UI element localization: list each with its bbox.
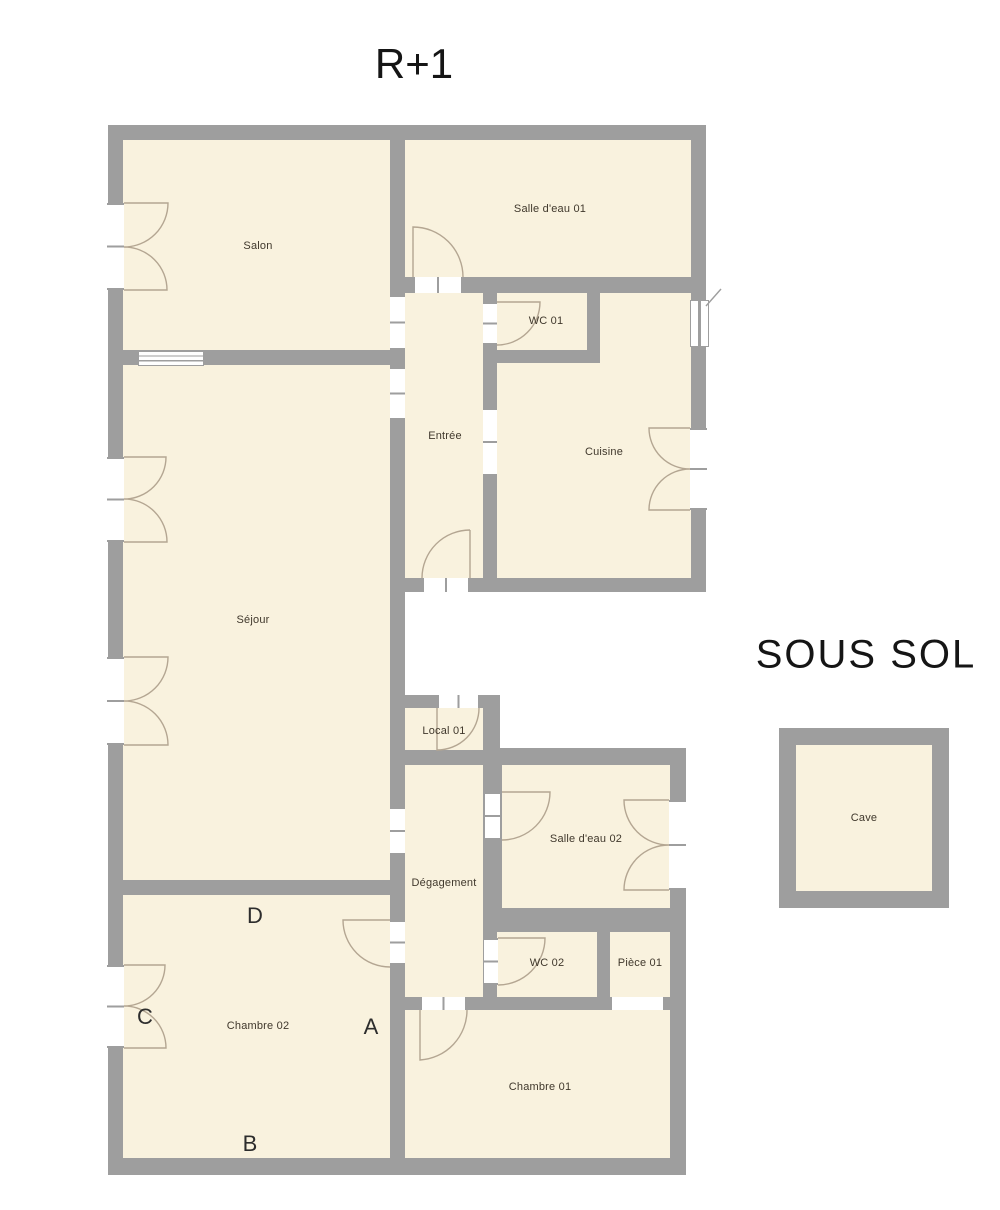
label-salon: Salon — [243, 240, 272, 252]
opening-piece-01-chambre-01 — [612, 997, 663, 1010]
door-opening-entree-cuisine — [483, 408, 497, 476]
french-door-frame-chambre-02 — [107, 965, 124, 1048]
door-opening-entree-exterior — [422, 578, 470, 592]
label-salle-deau-01: Salle d'eau 01 — [514, 203, 586, 215]
label-local-01: Local 01 — [422, 725, 465, 737]
door-opening-salle-deau-02 — [485, 792, 500, 840]
label-wc-01: WC 01 — [529, 315, 564, 327]
marker-d: D — [247, 903, 263, 929]
marker-b: B — [243, 1131, 258, 1157]
door-opening-salle-deau-01 — [413, 277, 463, 293]
label-chambre-02: Chambre 02 — [227, 1020, 290, 1032]
door-opening-sejour-degagement — [390, 807, 405, 855]
french-door-frame-sejour-1 — [107, 457, 124, 542]
label-salle-deau-02: Salle d'eau 02 — [550, 833, 622, 845]
label-sejour: Séjour — [237, 614, 270, 626]
door-opening-salon-entree — [390, 295, 405, 350]
label-piece-01: Pièce 01 — [618, 957, 662, 969]
window-cuisine — [690, 300, 709, 347]
french-door-frame-salon — [107, 203, 124, 290]
title-basement: SOUS SOL — [756, 633, 977, 678]
french-door-frame-sejour-2 — [107, 657, 124, 745]
floor-plan-page: R+1 SOUS SOL — [0, 0, 1000, 1210]
door-opening-chambre-02 — [390, 920, 405, 965]
french-door-frame-cuisine — [690, 428, 707, 510]
marker-c: C — [137, 1004, 153, 1030]
marker-a: A — [364, 1014, 379, 1040]
door-opening-wc-01 — [483, 302, 497, 345]
window-salon-sejour — [138, 351, 204, 366]
door-opening-degagement-chambre-01 — [420, 997, 467, 1010]
label-chambre-01: Chambre 01 — [509, 1081, 572, 1093]
door-opening-local-01 — [437, 695, 480, 708]
door-opening-sejour-entree — [390, 367, 405, 420]
title-upper-floor: R+1 — [375, 40, 453, 88]
label-cuisine: Cuisine — [585, 446, 623, 458]
french-door-frame-salle-deau-02 — [669, 800, 686, 890]
label-degagement: Dégagement — [412, 877, 477, 889]
room-cuisine-upper — [600, 293, 691, 363]
label-wc-02: WC 02 — [530, 957, 565, 969]
door-opening-wc-02 — [484, 938, 498, 985]
label-cave: Cave — [851, 812, 877, 824]
room-cuisine — [497, 363, 691, 578]
label-entree: Entrée — [428, 430, 462, 442]
